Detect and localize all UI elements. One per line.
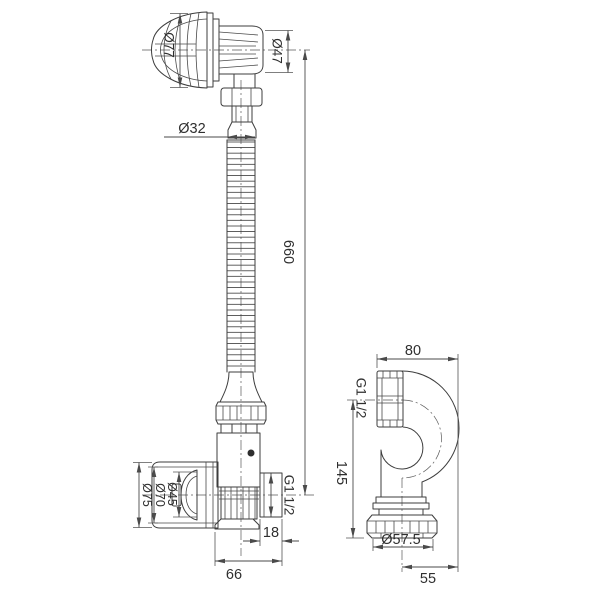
hose-corrugation (227, 141, 255, 371)
flexible-hose (220, 140, 262, 402)
technical-drawing-sheet: Ø77 Ø47 Ø32 660 Ø75 Ø70 (0, 0, 600, 600)
tee-main-body (217, 433, 260, 487)
dim-label-cup-ring-diameter: Ø70 (153, 483, 167, 507)
dim-tee-outlet-length: 18 (243, 519, 299, 566)
dim-label-trap-height: 145 (333, 461, 349, 485)
head-elbow (234, 74, 255, 88)
dim-label-hose-diameter: Ø32 (178, 121, 205, 137)
dim-label-cup-outer-diameter: Ø75 (140, 483, 154, 507)
dim-head-body-diameter: Ø47 (265, 31, 293, 73)
trap-hub-2 (373, 503, 429, 509)
dim-label-tee-width: 66 (226, 567, 242, 583)
dim-trap-outlet-offset: 55 (402, 567, 458, 587)
trap-hub-3 (379, 509, 423, 515)
dim-label-trap-outlet-offset: 55 (420, 571, 436, 587)
tee-tab-right (246, 424, 257, 433)
p-trap (367, 371, 459, 538)
overflow-head (152, 12, 264, 138)
dim-hose-length: 660 (280, 50, 305, 495)
tee-bottom-flare (215, 519, 259, 529)
tee-strainer (221, 487, 257, 519)
dim-label-trap-width: 80 (405, 343, 421, 359)
trap-inlet-nut (377, 371, 403, 427)
dim-label-tee-outlet-length: 18 (263, 525, 279, 541)
dim-label-plug-diameter: Ø45 (165, 482, 179, 506)
tee-tab-left (221, 424, 232, 433)
head-hex-nut (221, 88, 262, 106)
dim-label-hose-length: 660 (280, 240, 296, 264)
trap-hub-1 (376, 497, 426, 503)
dim-label-head-cap-diameter: Ø77 (162, 32, 177, 58)
siphon-technical-drawing: Ø77 Ø47 Ø32 660 Ø75 Ø70 (0, 0, 600, 600)
drain-tee (152, 402, 282, 529)
dim-trap-height: 145 (333, 400, 364, 538)
dim-label-trap-nut-diameter: Ø57.5 (381, 532, 421, 548)
dim-label-head-body-diameter: Ø47 (270, 38, 285, 64)
dim-trap-inlet-thread: G1 1/2 (354, 378, 369, 419)
trap-outer-curve (402, 371, 459, 497)
dim-hose-diameter: Ø32 (164, 121, 255, 137)
tee-screw-dot (248, 450, 255, 457)
head-nipple (232, 106, 252, 122)
dim-label-tee-outlet-thread: G1 1/2 (282, 475, 297, 516)
dim-label-trap-inlet-thread: G1 1/2 (354, 378, 369, 419)
head-hose-adapter (228, 122, 256, 138)
dim-cup-outer-diameter: Ø75 (133, 463, 154, 528)
dim-trap-nut-diameter: Ø57.5 (373, 532, 433, 551)
